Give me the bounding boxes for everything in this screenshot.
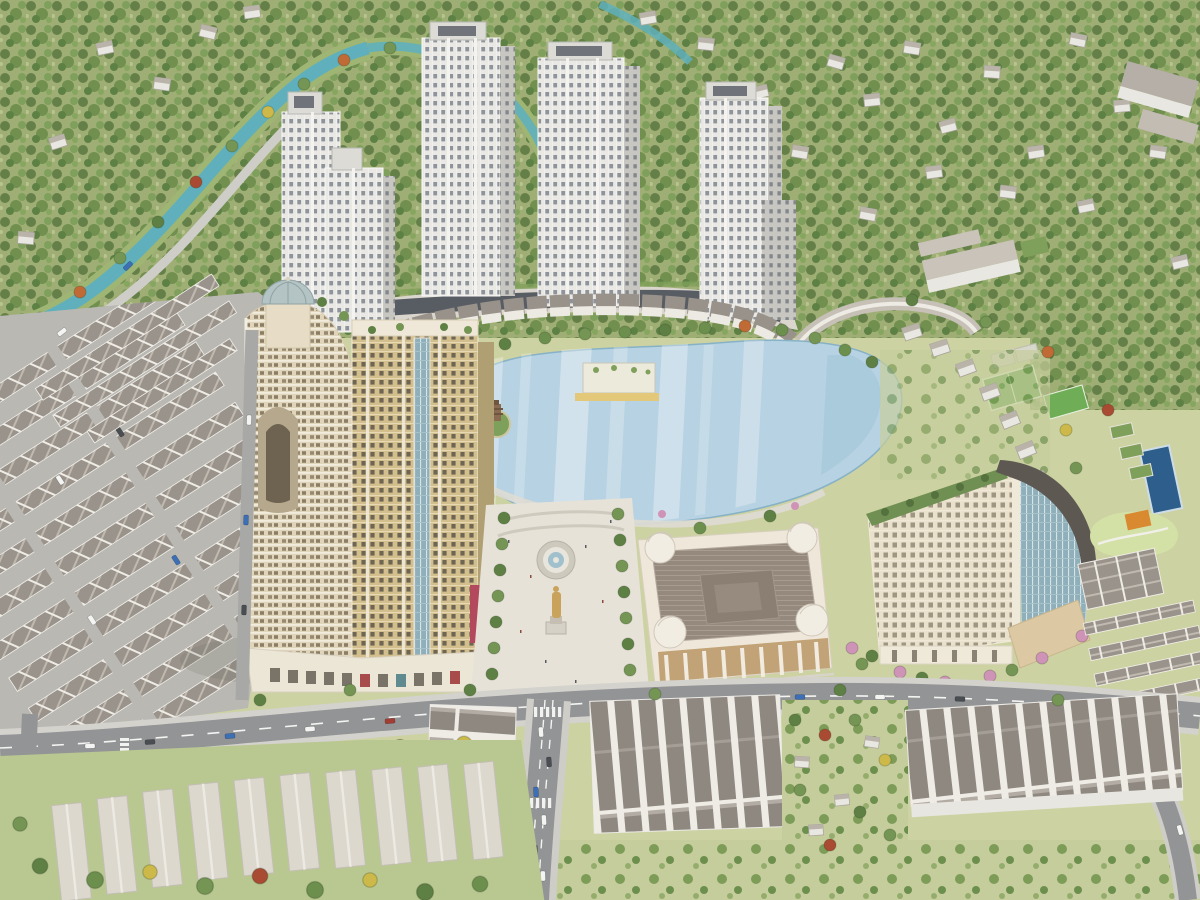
garden-south — [782, 700, 908, 851]
dome-turret — [266, 302, 310, 348]
fountain — [537, 541, 575, 579]
gold-tower-glass-strip — [414, 338, 430, 660]
clubhouse-beach-deck — [575, 393, 659, 401]
fountain-plaza — [470, 498, 650, 706]
masterplan-svg — [0, 0, 1200, 900]
masterplan-render — [0, 0, 1200, 900]
tower-4 — [700, 82, 796, 320]
shophouse-block-southeast — [905, 694, 1183, 817]
lakeside-clubhouse — [575, 363, 659, 401]
shed-rows-southwest — [0, 740, 545, 900]
townhouse-block-south-right — [590, 695, 784, 834]
tower-3 — [538, 42, 640, 306]
tower-2 — [422, 22, 515, 296]
